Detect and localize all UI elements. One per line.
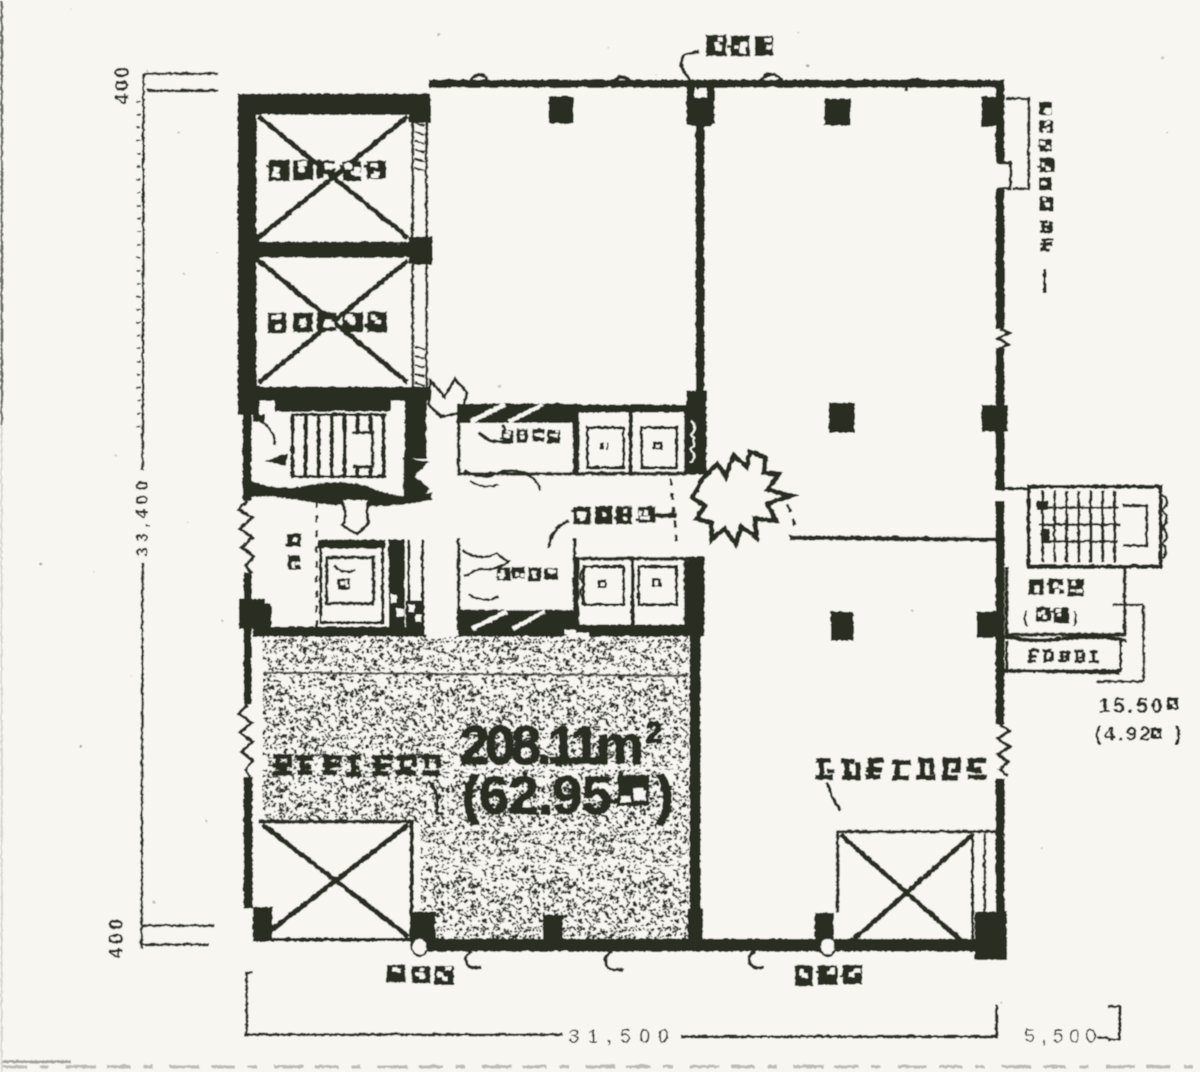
svg-text:): ) [1174, 723, 1181, 745]
svg-text:400: 400 [105, 918, 127, 958]
svg-text:400: 400 [111, 66, 133, 104]
svg-text:15.50: 15.50 [1098, 694, 1162, 717]
svg-text:): ) [655, 765, 673, 825]
svg-text:(62.95: (62.95 [461, 765, 611, 825]
svg-text:2: 2 [645, 716, 662, 749]
svg-text:): ) [1072, 609, 1077, 626]
svg-text:(: ( [1022, 609, 1028, 626]
svg-text:(4.92: (4.92 [1094, 723, 1150, 745]
